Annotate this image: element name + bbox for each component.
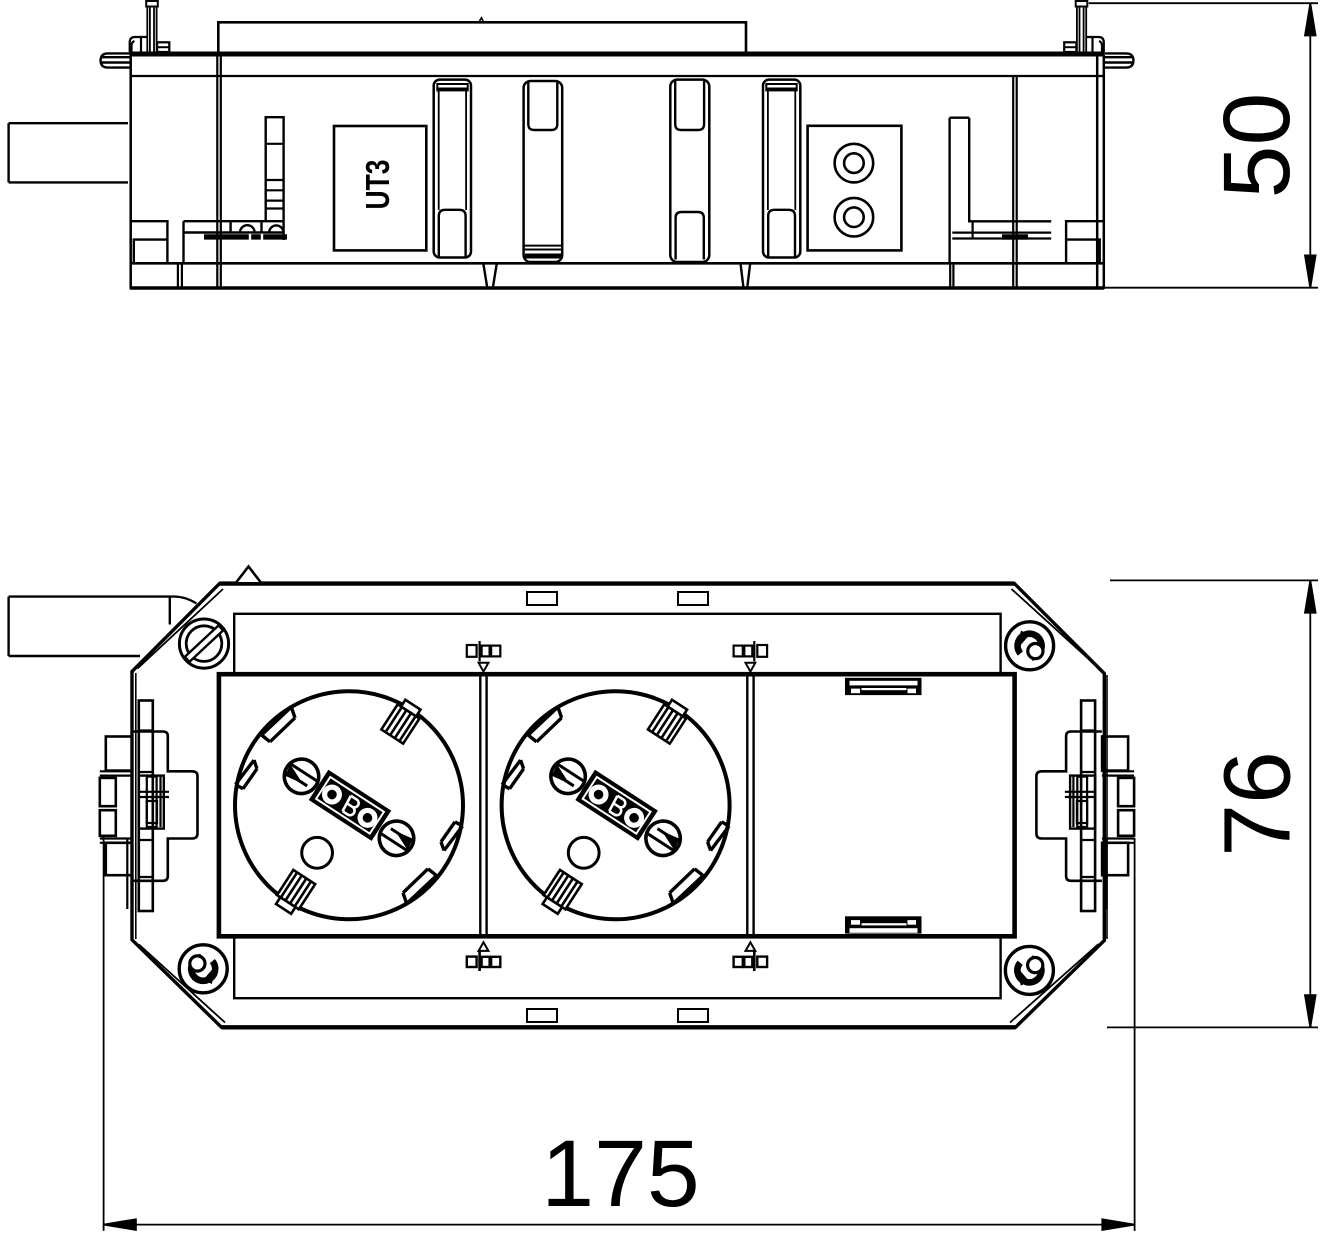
svg-text:175: 175: [541, 1121, 700, 1227]
svg-text:UT3: UT3: [360, 160, 397, 210]
svg-text:50: 50: [1204, 93, 1310, 199]
svg-text:76: 76: [1205, 751, 1311, 857]
